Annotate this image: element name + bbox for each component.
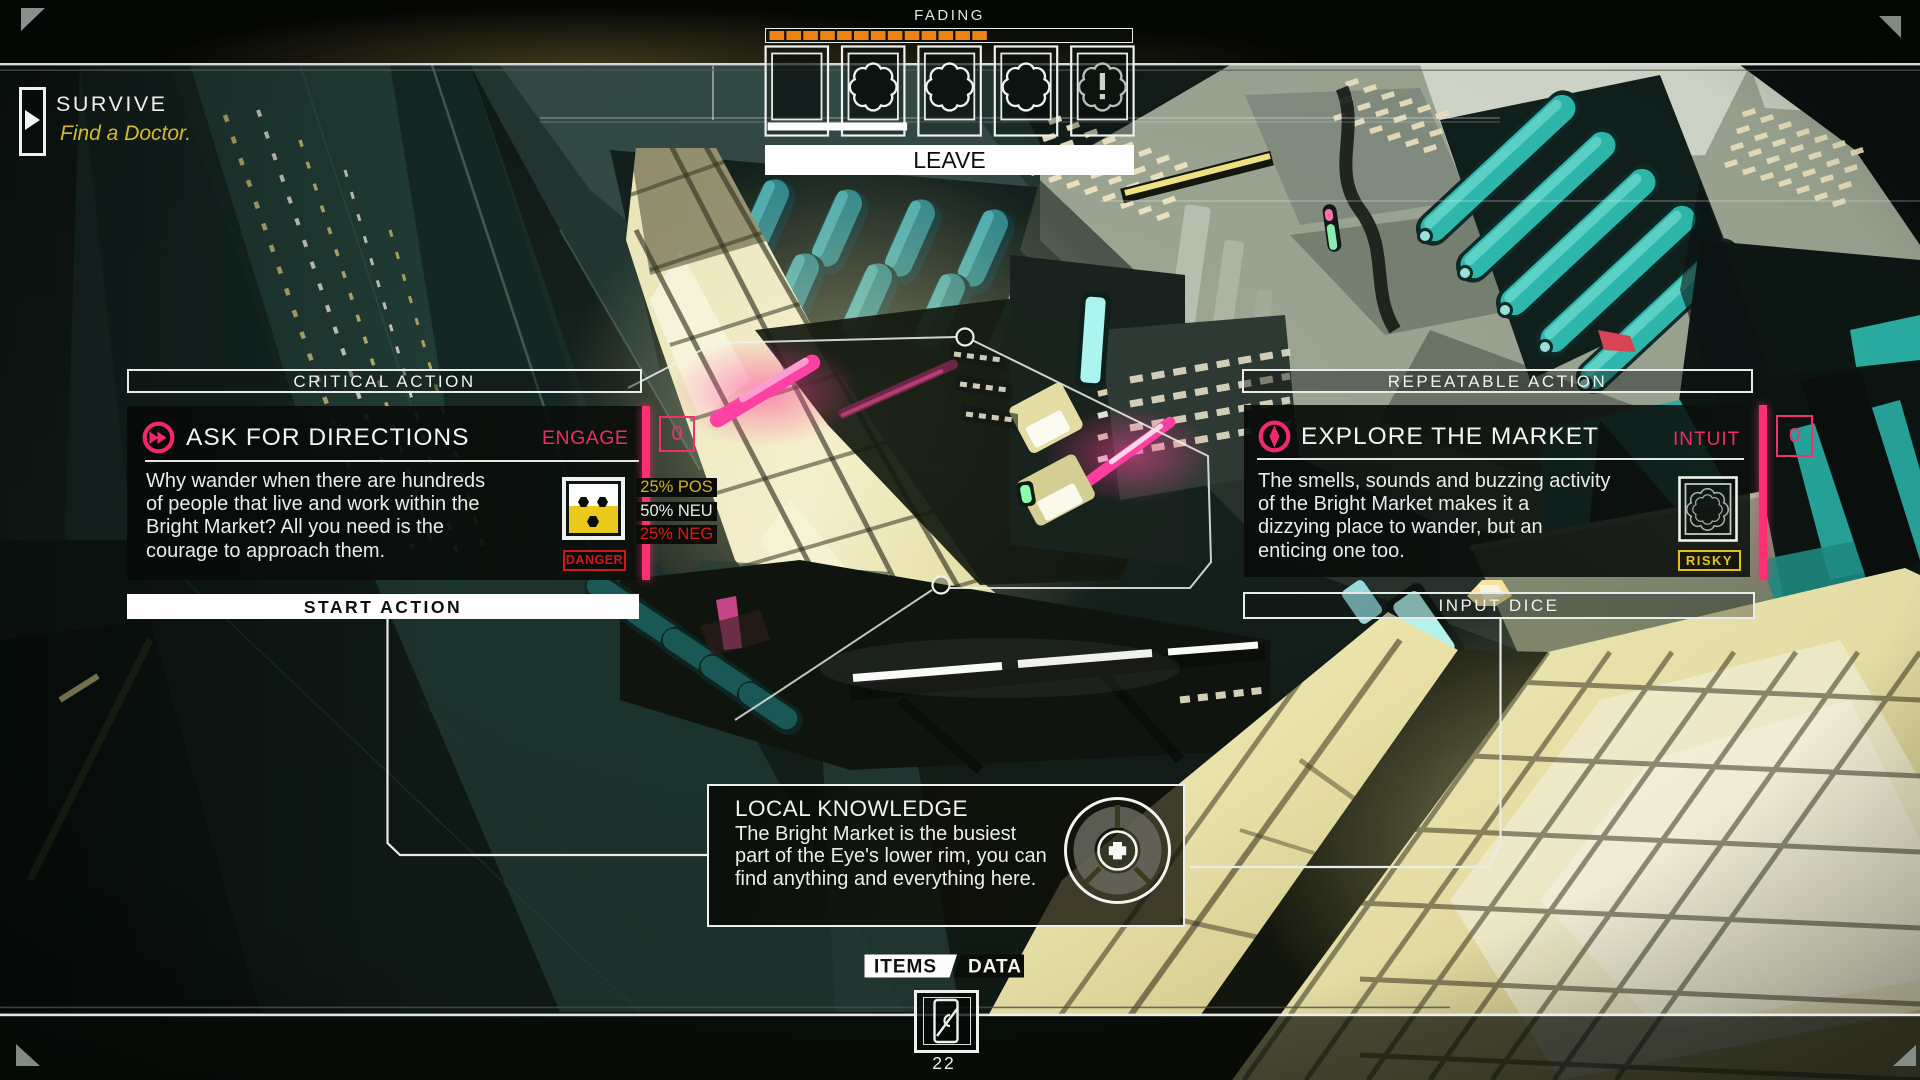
svg-text:ITEMS: ITEMS [874,957,937,978]
svg-text:DATA: DATA [968,957,1022,978]
